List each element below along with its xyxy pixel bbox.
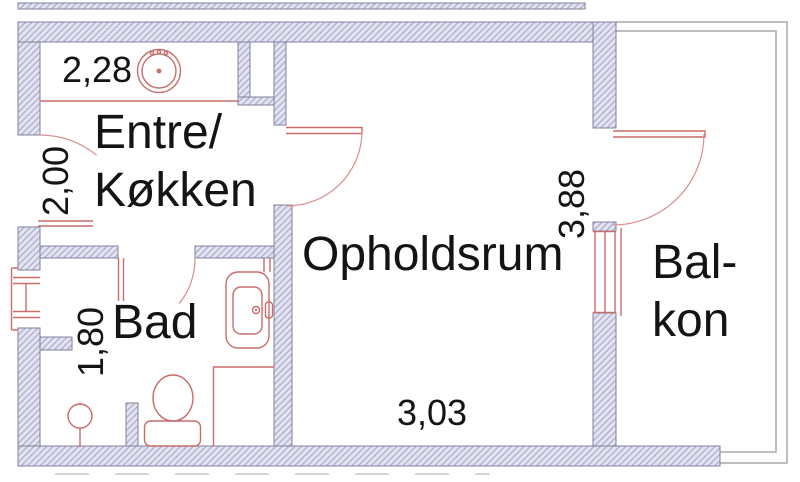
dim-kitchen-counter-width: 2,28	[62, 52, 132, 88]
room-label-entre-kokken: Entre/ Køkken	[94, 104, 257, 220]
outer-wall-left-lower	[18, 328, 40, 446]
floor-drain	[68, 404, 92, 447]
room-label-line: Køkken	[94, 162, 257, 220]
toilet	[145, 375, 201, 446]
kitchen-sink	[138, 50, 181, 93]
top-edge-strip	[18, 3, 585, 9]
niche-wall-left	[238, 42, 250, 105]
room-label-opholdsrum: Opholdsrum	[302, 226, 563, 284]
bathroom-stub-wall	[126, 403, 138, 446]
living-room-door	[286, 128, 362, 207]
room-label-line: Entre/	[94, 104, 257, 162]
floor-plan: Entre/ Køkken Opholdsrum Bad Bal- kon 2,…	[0, 0, 800, 482]
wall-entre-bad-right	[195, 246, 274, 258]
room-label-bad: Bad	[112, 294, 197, 352]
balcony-window	[593, 228, 621, 316]
bathroom-left-stub	[40, 337, 72, 350]
outer-wall-top	[18, 22, 616, 42]
wall-balkon-upper	[593, 22, 616, 128]
outer-wall-left-mid	[18, 227, 40, 270]
dim-bad-width: 1,80	[73, 307, 109, 377]
dim-entre-width: 2,00	[38, 146, 74, 216]
wall-entre-bad-left	[40, 246, 118, 258]
bathroom-window	[12, 268, 41, 330]
washbasin	[226, 258, 273, 348]
dim-opholdsrum-depth: 3,88	[554, 169, 590, 239]
outer-wall-left-upper	[18, 42, 40, 135]
shower-corner	[214, 367, 275, 446]
room-label-line: kon	[652, 292, 737, 350]
dim-opholdsrum-width: 3,03	[397, 395, 467, 431]
room-label-line: Bal-	[652, 234, 737, 292]
outer-wall-bottom	[18, 446, 720, 466]
wall-balkon-sill	[593, 222, 616, 231]
wall-balkon-lower	[593, 313, 616, 446]
balcony-door	[613, 131, 705, 225]
room-label-balkon: Bal- kon	[652, 234, 737, 350]
niche-wall-right	[274, 42, 286, 125]
wall-bad-opholdsrum	[274, 205, 292, 446]
